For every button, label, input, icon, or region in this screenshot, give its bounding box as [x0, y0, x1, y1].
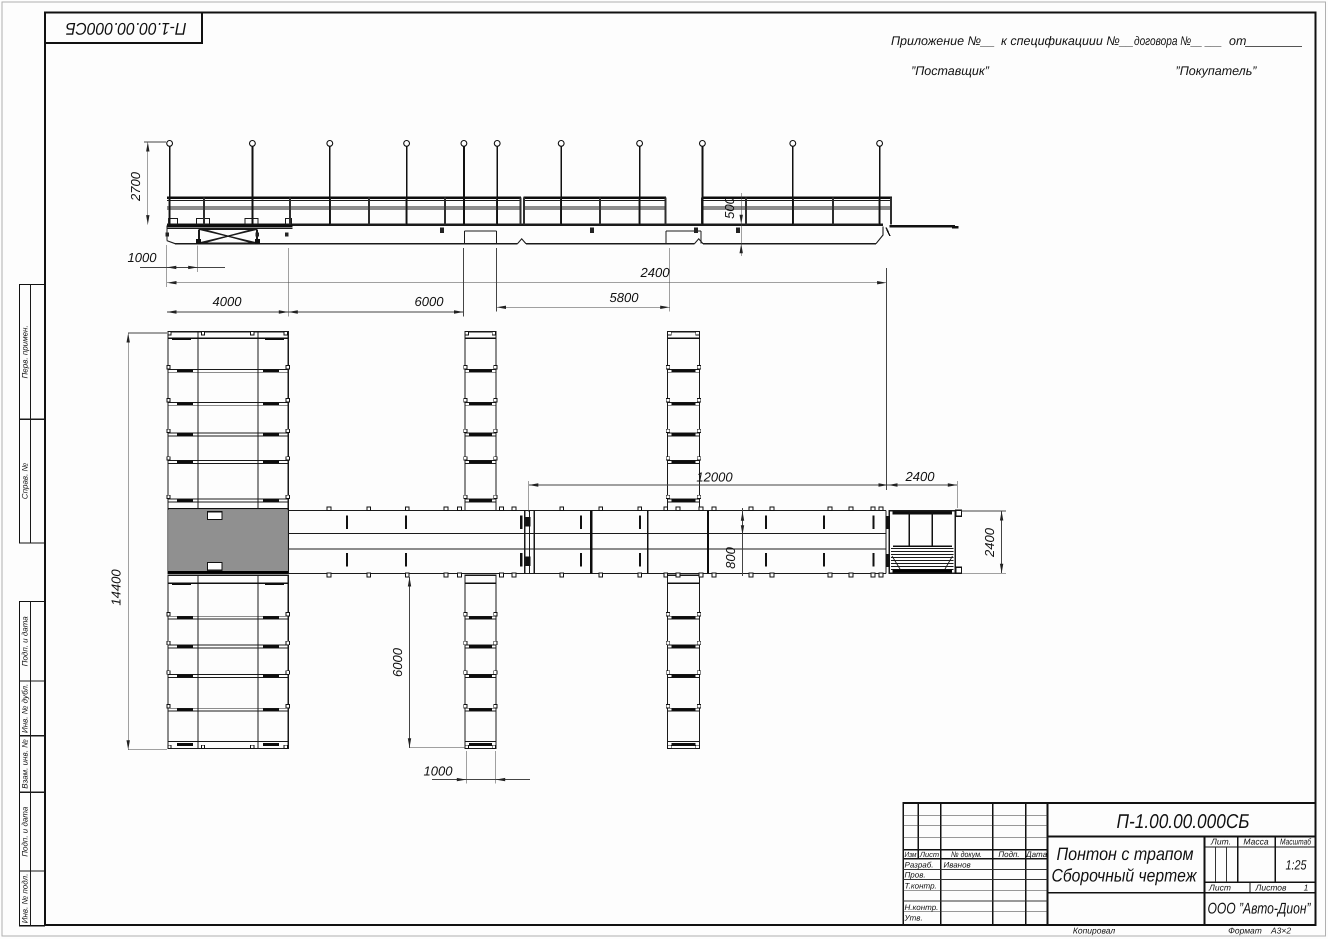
svg-text:Перв. примен.: Перв. примен.: [21, 325, 30, 378]
svg-text:14400: 14400: [109, 569, 124, 606]
svg-text:6000: 6000: [415, 294, 445, 309]
svg-text:”Поставщик”: ”Поставщик”: [911, 64, 990, 78]
svg-text:договора №__ ___: договора №__ ___: [1134, 34, 1222, 48]
svg-text:2400: 2400: [905, 469, 936, 484]
svg-text:Подп.: Подп.: [998, 850, 1019, 859]
svg-text:Лит.: Лит.: [1210, 837, 1231, 847]
svg-text:1000: 1000: [424, 764, 454, 779]
svg-text:Листов: Листов: [1255, 883, 1288, 893]
svg-text:Инв. № дубл.: Инв. № дубл.: [21, 684, 30, 733]
svg-text:12000: 12000: [696, 470, 733, 485]
svg-text:Понтон с трапом: Понтон с трапом: [1057, 844, 1194, 864]
svg-text:Копировал: Копировал: [1073, 926, 1115, 936]
svg-text:А3×2: А3×2: [1270, 926, 1291, 936]
svg-text:Справ. №: Справ. №: [21, 462, 30, 499]
svg-text:Инв. № подл.: Инв. № подл.: [21, 874, 30, 924]
svg-text:Приложение №__: Приложение №__: [891, 34, 995, 48]
svg-text:Утв.: Утв.: [904, 914, 923, 923]
svg-text:Т.контр.: Т.контр.: [905, 881, 937, 890]
svg-text:Подп. и дата: Подп. и дата: [21, 616, 30, 667]
svg-text:Иванов: Иванов: [944, 861, 971, 870]
svg-text:№ докум.: № докум.: [951, 850, 982, 859]
svg-text:5800: 5800: [610, 290, 640, 305]
svg-text:Масса: Масса: [1243, 837, 1268, 847]
svg-text:Масштаб: Масштаб: [1280, 837, 1312, 847]
svg-text:1: 1: [1304, 883, 1309, 893]
svg-text:Дата: Дата: [1025, 850, 1048, 859]
svg-text:6000: 6000: [390, 647, 405, 677]
svg-text:Разраб.: Разраб.: [905, 861, 934, 870]
svg-text:Пров.: Пров.: [905, 871, 926, 880]
svg-text:Изм: Изм: [905, 850, 917, 859]
svg-text:4000: 4000: [213, 294, 243, 309]
svg-text:П-1.00.00.000СБ: П-1.00.00.000СБ: [1117, 811, 1250, 833]
svg-text:”Покупатель”: ”Покупатель”: [1176, 64, 1258, 78]
svg-text:2700: 2700: [128, 171, 143, 202]
svg-text:2400: 2400: [982, 527, 997, 558]
svg-text:к спецификациии №__: к спецификациии №__: [1001, 34, 1134, 48]
svg-text:Сборочный чертеж: Сборочный чертеж: [1052, 866, 1198, 886]
svg-text:Лист: Лист: [1208, 883, 1231, 893]
svg-text:1:25: 1:25: [1286, 858, 1307, 873]
svg-text:ООО ”Авто-Дион”: ООО ”Авто-Дион”: [1208, 901, 1312, 918]
svg-text:Лист: Лист: [919, 850, 939, 859]
svg-text:500: 500: [722, 196, 737, 218]
svg-text:Подп. и дата: Подп. и дата: [21, 806, 30, 857]
svg-text:1000: 1000: [128, 250, 158, 265]
svg-text:от: от: [1229, 34, 1246, 48]
svg-text:П-1.00.00.000СБ: П-1.00.00.000СБ: [66, 19, 187, 38]
svg-text:Н.контр.: Н.контр.: [905, 903, 939, 912]
svg-text:Взам. инв. №: Взам. инв. №: [21, 739, 30, 789]
svg-text:800: 800: [723, 546, 738, 568]
svg-text:Формат: Формат: [1228, 926, 1262, 936]
svg-text:2400: 2400: [640, 265, 671, 280]
